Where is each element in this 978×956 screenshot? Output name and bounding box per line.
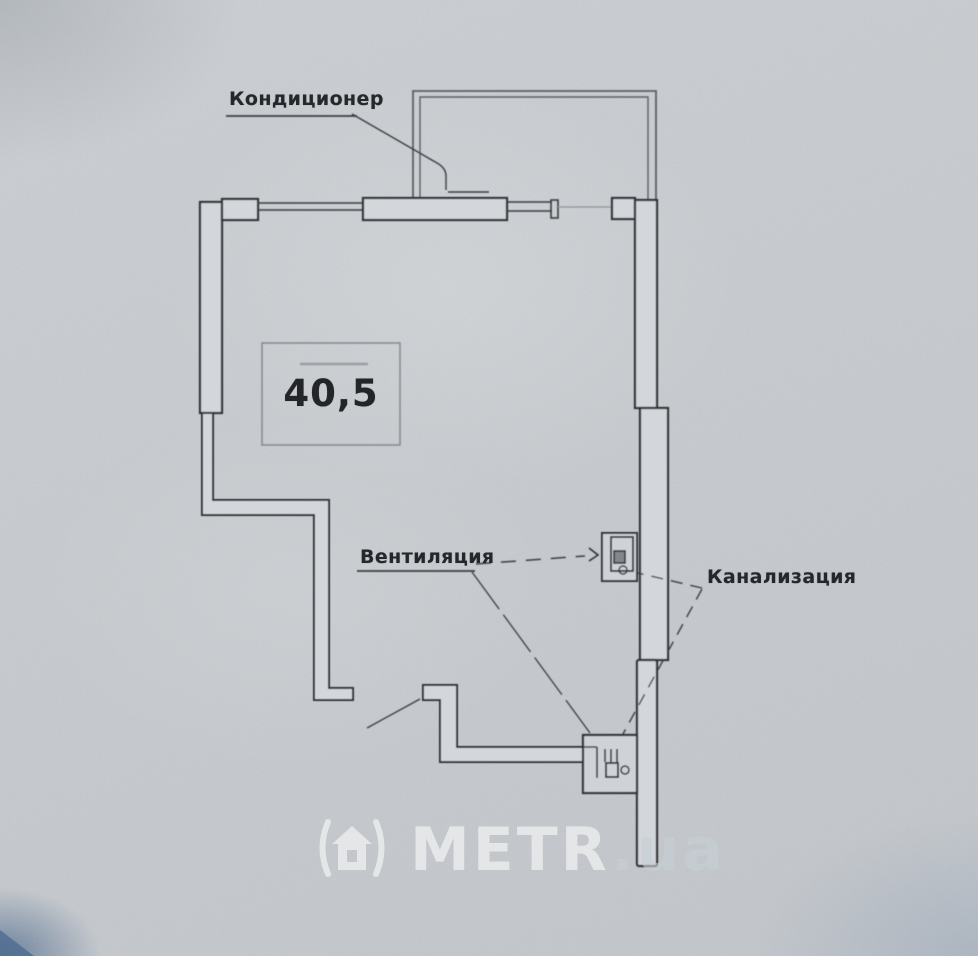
corner-pier	[222, 199, 258, 220]
air-conditioner-label: Кондиционер	[229, 88, 384, 110]
floor-plan-drawing	[0, 0, 978, 956]
sewerage-label: Канализация	[707, 566, 856, 588]
paper-texture	[0, 0, 978, 956]
watermark-text: METR.ua	[410, 816, 726, 880]
right-wall-upper	[635, 200, 657, 408]
watermark-suffix: .ua	[611, 815, 726, 885]
center-wall-pier	[363, 198, 507, 220]
watermark: METR.ua	[314, 816, 726, 880]
metr-house-logo-icon	[314, 818, 390, 878]
ventilation-label: Вентиляция	[360, 546, 495, 568]
watermark-brand: METR	[410, 815, 611, 885]
scanned-floor-plan: Кондиционер Вентиляция Канализация 40,5 …	[0, 0, 978, 956]
photo-corner-shadow	[0, 930, 34, 956]
left-wall-pier	[200, 202, 222, 413]
right-wall-corner-block	[612, 198, 635, 219]
sewer-riser-symbol	[583, 735, 637, 793]
right-wall-middle	[640, 408, 668, 660]
area-value: 40,5	[262, 372, 400, 415]
